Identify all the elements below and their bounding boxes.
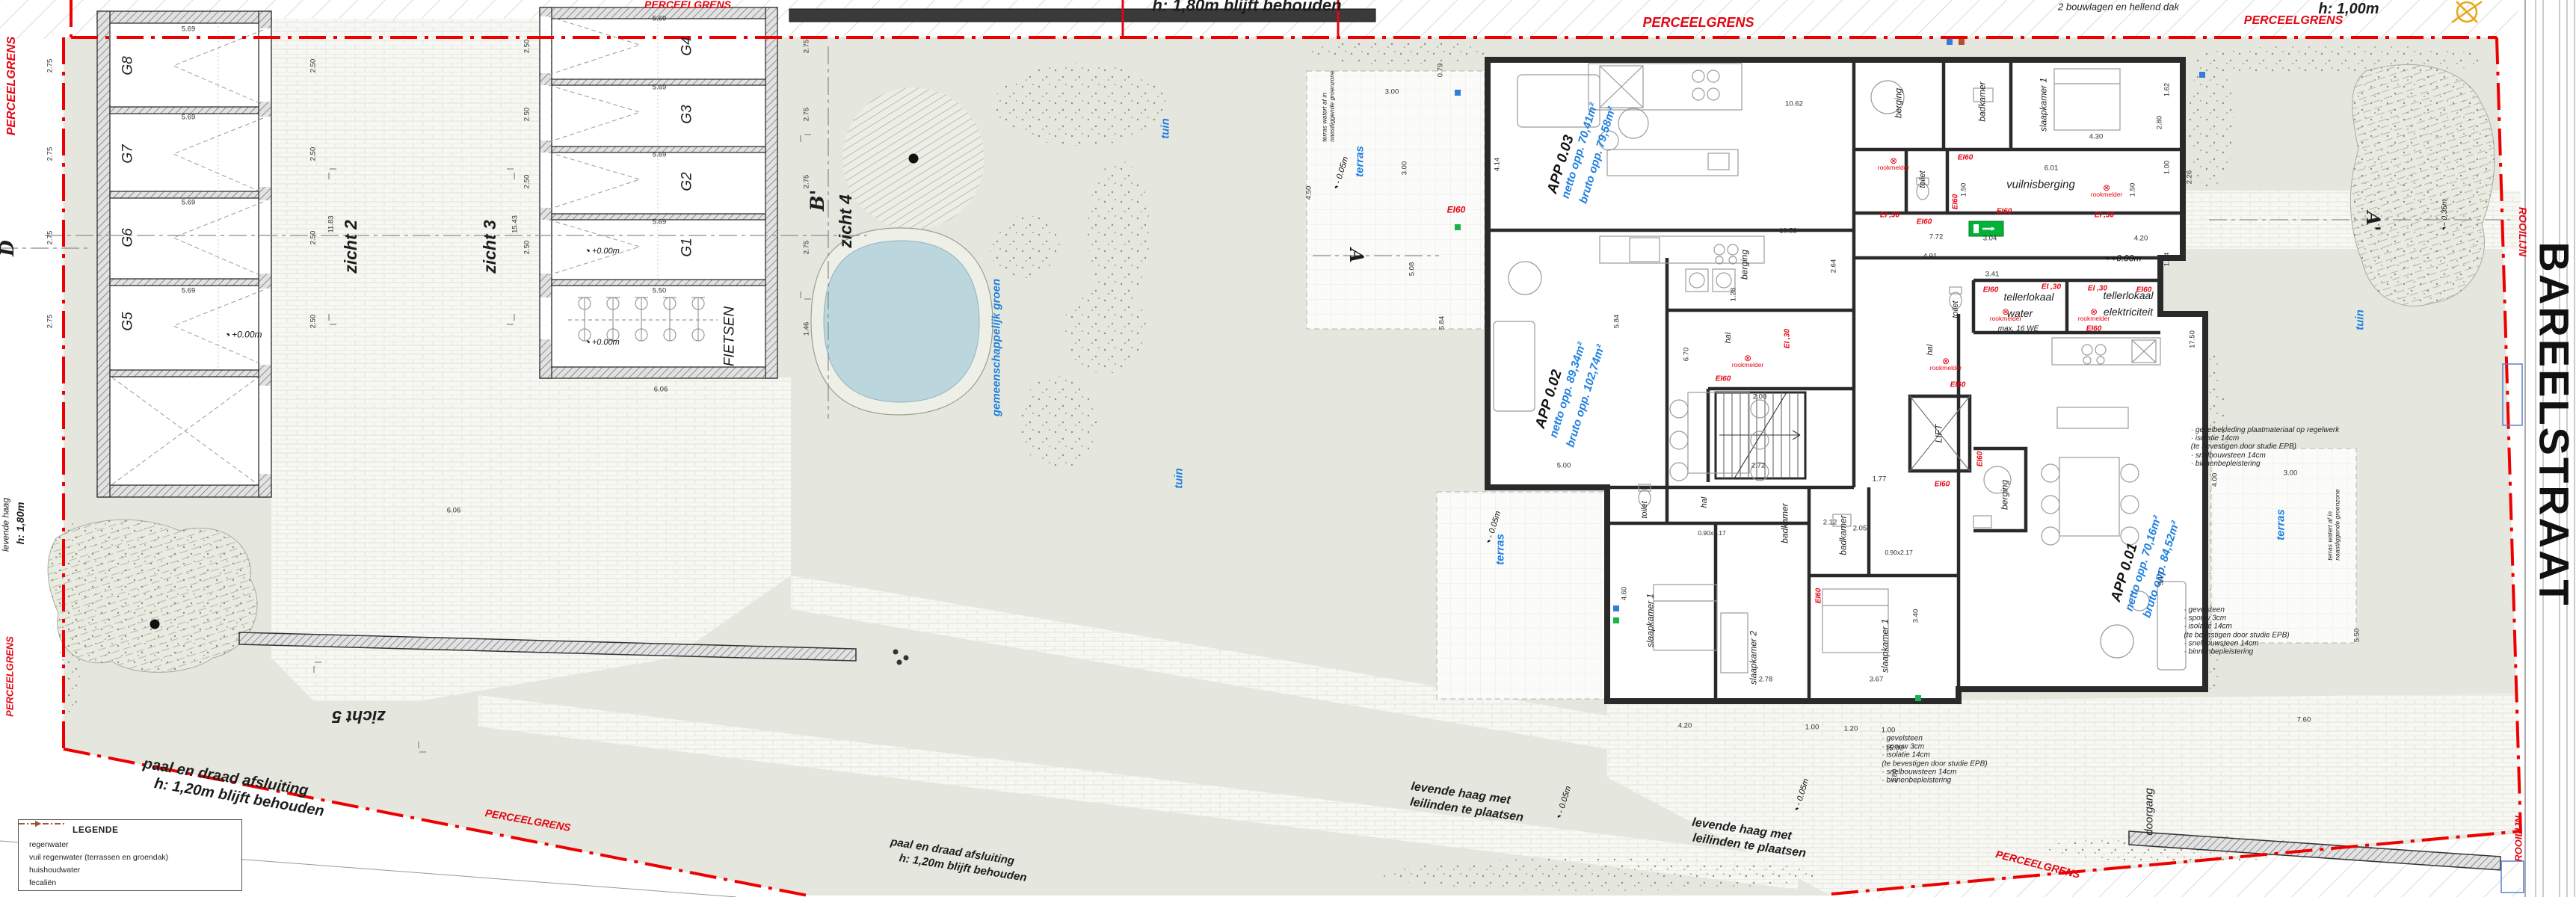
legend-title: LEGENDE xyxy=(73,824,234,835)
label-117-bareelstraat: BAREELSTRAAT xyxy=(2530,241,2576,607)
label-26-zicht-4: zicht 4 xyxy=(836,194,856,248)
label-134-5-69: 5.69 xyxy=(653,152,667,160)
label-75-berging: berging xyxy=(2000,480,2009,510)
label-104--0-00m: +0.00m xyxy=(585,247,620,256)
label-94-ei60: EI60 xyxy=(1976,451,1984,467)
label-182-3-40: 3.40 xyxy=(1913,609,1921,623)
label-74-lift: LIFT xyxy=(1934,425,1944,443)
label-149-3-00: 3.00 xyxy=(1402,161,1410,176)
label-1-perceelgrens: PERCEELGRENS xyxy=(5,636,16,717)
label-121-5-69: 5.69 xyxy=(182,288,196,296)
label-10-2-bouwlagen-en-hellend-dak: 2 bouwlagen en hellend dak xyxy=(2058,2,2179,13)
label-118-5-69: 5.69 xyxy=(182,26,196,34)
legend-item-2: huishoudwater xyxy=(29,863,234,876)
label-180-2-78: 2.78 xyxy=(1759,676,1773,685)
label-86-ei60: EI60 xyxy=(1716,374,1731,383)
legend: LEGENDE regenwatervuil regenwater (terra… xyxy=(18,819,242,891)
label-91-ei60: EI60 xyxy=(2136,286,2152,294)
label-133-5-69: 5.69 xyxy=(653,84,667,93)
label-161-1-77: 1.77 xyxy=(1873,476,1887,484)
label-160-2-72: 2.72 xyxy=(1751,463,1766,471)
label-152-4-14: 4.14 xyxy=(1494,158,1503,172)
label-30-a: A xyxy=(1346,248,1366,262)
label-34-g6: G6 xyxy=(120,228,135,247)
label-128-2-50: 2.50 xyxy=(310,231,318,245)
label-187-15-00: 15.00 xyxy=(1885,745,1903,753)
label-63-toilet: toilet xyxy=(1640,501,1649,518)
label-39-g1: G1 xyxy=(679,238,694,256)
label-193-5-50: 5.50 xyxy=(2354,629,2362,643)
label-67-tellerlokaal: tellerlokaal xyxy=(2004,292,2054,303)
label-25-zicht-3: zicht 3 xyxy=(481,220,500,274)
label-143-2-50: 2.50 xyxy=(524,108,532,122)
label-183-4-20: 4.20 xyxy=(1678,723,1692,731)
label-103--0-00m: +0.00m xyxy=(225,330,262,339)
label-23-fietsen: FIETSEN xyxy=(721,306,737,366)
label-130-11-83: 11.83 xyxy=(328,215,336,232)
legend-item-label: fecaliën xyxy=(29,878,56,887)
label-100-rookmelder: rookmelder xyxy=(1930,357,1962,372)
label-123-2-75: 2.75 xyxy=(47,147,55,161)
label-125-2-75: 2.75 xyxy=(47,315,55,329)
label-95-ei60: EI60 xyxy=(1935,480,1950,488)
label-42-tuin: tuin xyxy=(2355,309,2367,330)
label-176-2-12: 2.12 xyxy=(1823,520,1837,528)
label-181-3-67: 3.67 xyxy=(1870,676,1884,685)
label-111--0-35m: - 0.35m xyxy=(2440,200,2449,232)
label-96-ei60: EI60 xyxy=(1814,588,1822,604)
label-97-rookmelder: rookmelder xyxy=(1878,157,1910,172)
label-98-rookmelder: rookmelder xyxy=(2091,184,2123,199)
label-11-h-1-00m: h: 1,00m xyxy=(2318,1,2379,17)
label-171-2-64: 2.64 xyxy=(1831,259,1839,274)
label-65-badkamer: badkamer xyxy=(1780,503,1790,543)
label-41-tuin: tuin xyxy=(1174,468,1186,489)
label-87-ei-30: EI ,30 xyxy=(1783,329,1791,348)
label-194-3-00: 3.00 xyxy=(2284,470,2298,478)
label-27-zicht-5: zicht 5 xyxy=(332,706,386,726)
site-plan: PERCEELGRENSPERCEELGRENSPERCEELGRENSPERC… xyxy=(0,0,2576,897)
label-57-badkamer: badkamer xyxy=(1977,81,1987,121)
label-89-ei-30: EI ,30 xyxy=(2088,284,2107,292)
label-62-hal: hal xyxy=(1724,333,1733,344)
label-126-2-50: 2.50 xyxy=(310,59,318,73)
label-135-5-69: 5.69 xyxy=(653,219,667,227)
label-layer: PERCEELGRENSPERCEELGRENSPERCEELGRENSPERC… xyxy=(0,0,2576,897)
label-137-2-75: 2.75 xyxy=(804,40,812,54)
label-153-10-62: 10.62 xyxy=(1785,101,1803,109)
label-8-rooilijn: ROOILIJN xyxy=(2514,816,2525,861)
label-36-g4: G4 xyxy=(679,37,694,55)
label-45-terras: terras xyxy=(1495,534,1508,565)
label-164-1-50: 1.50 xyxy=(1961,183,1969,197)
label-5-perceelgrens: PERCEELGRENS xyxy=(484,807,572,834)
legend-line-icon xyxy=(19,820,65,827)
label-168-4-20: 4.20 xyxy=(2134,235,2148,244)
label-173-6-70: 6.70 xyxy=(1683,348,1692,362)
label-129-2-50: 2.50 xyxy=(310,315,318,329)
label-88-ei-30: EI ,30 xyxy=(2042,283,2061,291)
label-116-terras-watert-af-in-naastlig: terras watert af in naastliggende groenz… xyxy=(2326,489,2341,560)
label-197-1-00: 1.00 xyxy=(2164,161,2172,175)
label-196-1-62: 1.62 xyxy=(2164,83,2172,97)
label-101-rookmelder: rookmelder xyxy=(1990,308,2022,323)
label-170-3-41: 3.41 xyxy=(1985,271,2000,280)
label-46-terras: terras xyxy=(2275,509,2288,540)
label-3-perceelgrens: PERCEELGRENS xyxy=(1642,15,1754,30)
label-58-slaapkamer-1: slaapkamer 1 xyxy=(2039,78,2048,132)
label-82-ei60: EI60 xyxy=(1997,207,2012,215)
label-163-4-30: 4.30 xyxy=(2089,134,2104,142)
label-157-5-84: 5.84 xyxy=(1614,315,1622,329)
label-76-slaapkamer-1: slaapkamer 1 xyxy=(1645,594,1655,647)
label-109--0-05m: - 0.05m xyxy=(1554,785,1573,821)
label-198-1-34: 1.34 xyxy=(2164,253,2172,267)
label-21-h-1-80m: h: 1,80m xyxy=(15,502,27,545)
label-154-10-53: 10.53 xyxy=(1779,228,1797,236)
label-151-0-79: 0.79 xyxy=(1438,64,1446,78)
label-185-1-20: 1.20 xyxy=(1844,726,1858,734)
label-177-0-90x2-17: 0.90x2.17 xyxy=(1698,530,1725,537)
label-85-ei-30: EI ,30 xyxy=(2095,211,2114,219)
legend-item-label: huishoudwater xyxy=(29,866,80,875)
legend-item-1: vuil regenwater (terrassen en groendak) xyxy=(29,851,234,863)
label-59-toilet: toilet xyxy=(1918,170,1927,188)
label-29-d: D xyxy=(0,240,18,256)
label-122-2-75: 2.75 xyxy=(47,59,55,73)
label-73-hal: hal xyxy=(1926,345,1935,356)
label-40-tuin: tuin xyxy=(1160,118,1173,139)
label-115-terras-watert-af-in-naastlig: terras watert af in naastliggende groenz… xyxy=(1321,70,1335,141)
label-158-5-08: 5.08 xyxy=(1409,262,1417,277)
legend-item-3: fecaliën xyxy=(29,876,234,889)
label-167-3-04: 3.04 xyxy=(1983,235,1997,244)
label-179-4-60: 4.60 xyxy=(1621,587,1630,601)
legend-item-label: regenwater xyxy=(29,840,69,849)
label-99-rookmelder: rookmelder xyxy=(1732,354,1764,369)
label-110--0-05m: - 0.05m xyxy=(1792,777,1811,813)
label-140-2-75: 2.75 xyxy=(804,241,812,255)
label-66-badkamer: badkamer xyxy=(1838,515,1848,555)
legend-item-0: regenwater xyxy=(29,838,234,851)
label-78-slaapkamer-1: slaapkamer 1 xyxy=(1880,619,1890,673)
label-84-ei-30: EI ,30 xyxy=(1880,211,1899,219)
label-172-1-28: 1.28 xyxy=(1731,288,1739,302)
label-79-ei60: EI60 xyxy=(1447,205,1466,215)
label-188-7-60: 7.60 xyxy=(2297,717,2311,725)
label-156-5-84: 5.84 xyxy=(1439,316,1447,330)
label-166-2-80: 2.80 xyxy=(2157,116,2165,130)
label-72-toilet: toilet xyxy=(1951,300,1960,318)
label-192-4-00: 4.00 xyxy=(2212,473,2220,487)
label-106--0-00m: +0.00m xyxy=(2104,253,2141,263)
label-6-perceelgrens: PERCEELGRENS xyxy=(1994,848,2081,881)
label-114--gevelsteen-spouw-3cm-isolat: · gevelsteen · spouw 3cm · isolatie 14cm… xyxy=(2184,605,2289,656)
label-148-3-00: 3.00 xyxy=(1385,89,1399,97)
label-124-2-75: 2.75 xyxy=(47,231,55,245)
label-28-b-: B' xyxy=(807,190,828,212)
label-2-perceelgrens: PERCEELGRENS xyxy=(644,0,731,11)
label-0-perceelgrens: PERCEELGRENS xyxy=(5,37,19,135)
label-120-5-69: 5.69 xyxy=(182,200,196,208)
label-107--0-05m: - 0.05m xyxy=(1331,155,1350,191)
label-195-9-17: 9.17 xyxy=(2158,572,2166,586)
label-184-1-00: 1.00 xyxy=(1805,724,1819,733)
label-64-hal: hal xyxy=(1700,497,1709,508)
label-56-berging: berging xyxy=(1894,88,1903,118)
label-60-vuilnisberging: vuilnisberging xyxy=(2006,179,2075,192)
legend-item-label: vuil regenwater (terrassen en groendak) xyxy=(29,853,168,862)
label-155-7-72: 7.72 xyxy=(1929,234,1944,242)
label-81-ei60: EI60 xyxy=(1951,194,1959,210)
label-159-5-00: 5.00 xyxy=(1557,463,1571,471)
label-112--gevelbekleding-plaatmateria: · gevelbekleding plaatmateriaal op regel… xyxy=(2191,426,2339,468)
label-80-ei60: EI60 xyxy=(1958,153,1973,161)
label-146-15-43: 15.43 xyxy=(512,215,520,233)
label-189-2-80: 2.80 xyxy=(1892,769,1900,783)
label-7-rooilijn: ROOILIJN xyxy=(2516,207,2528,256)
label-38-g2: G2 xyxy=(679,172,694,191)
label-20-levende-haag: levende haag xyxy=(1,498,10,552)
label-138-2-75: 2.75 xyxy=(804,108,812,122)
label-142-2-50: 2.50 xyxy=(524,40,532,54)
label-93-ei60: EI60 xyxy=(1950,380,1966,389)
label-43-gemeenschappelijk-groen: gemeenschappelijk groen xyxy=(991,279,1004,416)
label-61-berging: berging xyxy=(1740,250,1749,280)
label-102-rookmelder: rookmelder xyxy=(2078,308,2110,323)
label-141-1-46: 1.46 xyxy=(804,322,812,336)
label-175-2-05: 2.05 xyxy=(1853,525,1867,534)
label-69-max-16-we: max. 16 WE xyxy=(1998,324,2039,333)
label-190-17-50: 17.50 xyxy=(2190,330,2198,348)
label-35-g5: G5 xyxy=(120,312,135,330)
label-37-g3: G3 xyxy=(679,105,694,123)
label-147-6-06: 6.06 xyxy=(654,386,668,395)
label-32-g8: G8 xyxy=(120,56,135,75)
label-33-g7: G7 xyxy=(120,144,135,163)
label-191-2-26: 2.26 xyxy=(2187,170,2195,185)
label-22-doorgang: doorgang xyxy=(2144,788,2157,835)
label-90-ei60: EI60 xyxy=(1983,286,1999,294)
label-71-elektriciteit: elektriciteit xyxy=(2104,306,2153,318)
label-83-ei60: EI60 xyxy=(1917,218,1932,226)
label-144-2-50: 2.50 xyxy=(524,175,532,189)
label-145-2-50: 2.50 xyxy=(524,241,532,255)
label-178-0-90x2-17: 0.90x2.17 xyxy=(1885,549,1912,557)
label-165-1-50: 1.50 xyxy=(2130,183,2138,197)
label-150-4-50: 4.50 xyxy=(1306,186,1314,200)
label-9-h-1-80m-blijft-behouden: h: 1,80m blijft behouden xyxy=(1152,0,1341,15)
label-31-a-: A' xyxy=(2362,211,2383,231)
label-139-2-75: 2.75 xyxy=(804,175,812,189)
label-119-5-69: 5.69 xyxy=(182,114,196,123)
label-174-2-00: 2.00 xyxy=(1753,394,1767,402)
label-136-5-50: 5.50 xyxy=(653,288,667,296)
label-131-6-06: 6.06 xyxy=(447,508,461,516)
label-92-ei60: EI60 xyxy=(2086,324,2102,333)
label-186-1-00: 1.00 xyxy=(1882,727,1896,736)
label-127-2-50: 2.50 xyxy=(310,147,318,161)
label-24-zicht-2: zicht 2 xyxy=(342,220,361,274)
label-169-4-91: 4.91 xyxy=(1923,253,1938,262)
label-132-5-69: 5.69 xyxy=(653,16,667,24)
label-44-terras: terras xyxy=(1355,146,1367,177)
label-162-6-01: 6.01 xyxy=(2045,165,2059,173)
label-77-slaapkamer-2: slaapkamer 2 xyxy=(1748,631,1758,685)
label-105--0-00m: +0.00m xyxy=(585,338,620,347)
